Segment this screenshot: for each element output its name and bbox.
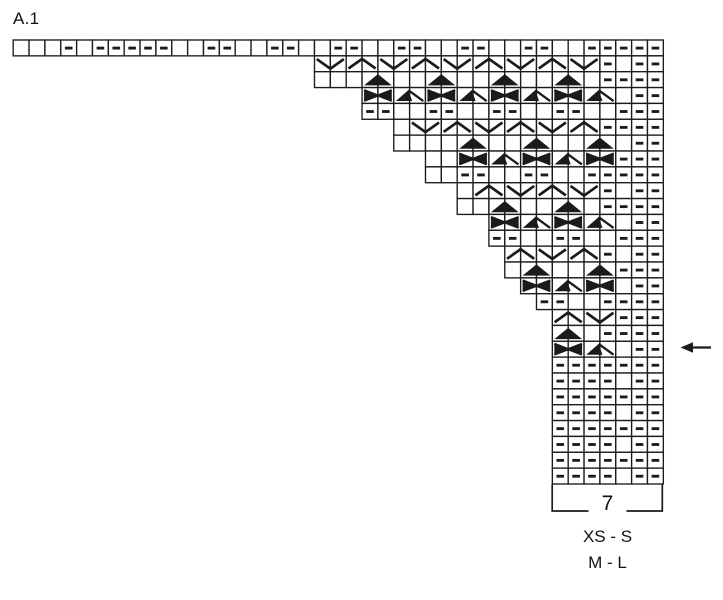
chart-cells [13, 40, 663, 484]
stitch-count-label: 7 [552, 492, 663, 516]
size-label-m-l: M - L [552, 553, 663, 573]
start-row-arrow-icon [681, 342, 712, 353]
knitting-chart-page: A.1 7 XS - S M - L [0, 0, 723, 600]
size-label-xs-s: XS - S [552, 527, 663, 547]
